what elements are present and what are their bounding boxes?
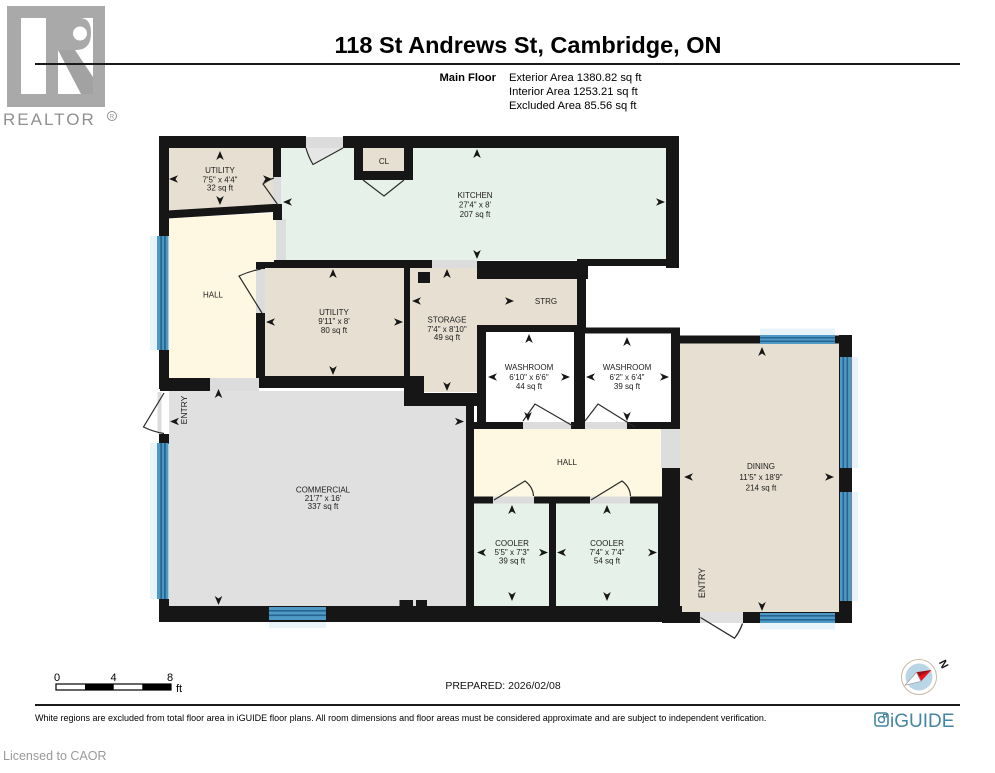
svg-text:COOLER: COOLER — [495, 539, 529, 548]
svg-text:Main Floor: Main Floor — [439, 72, 496, 84]
svg-text:80 sq ft: 80 sq ft — [321, 326, 348, 335]
svg-text:8: 8 — [167, 672, 173, 684]
svg-text:4: 4 — [110, 672, 116, 684]
svg-text:Exterior Area 1380.82 sq ft: Exterior Area 1380.82 sq ft — [509, 72, 642, 84]
svg-text:6'10" x 6'6": 6'10" x 6'6" — [509, 373, 549, 382]
svg-text:R: R — [110, 115, 115, 121]
svg-text:HALL: HALL — [203, 291, 224, 300]
svg-text:DINING: DINING — [747, 462, 775, 471]
svg-text:WASHROOM: WASHROOM — [505, 363, 554, 372]
svg-text:STORAGE: STORAGE — [428, 316, 467, 325]
svg-text:9'11" x 8': 9'11" x 8' — [318, 317, 350, 326]
svg-text:UTILITY: UTILITY — [319, 308, 349, 317]
svg-text:PREPARED: 2026/02/08: PREPARED: 2026/02/08 — [445, 680, 561, 692]
svg-text:White regions are excluded fro: White regions are excluded from total fl… — [35, 713, 766, 723]
svg-text:ENTRY: ENTRY — [697, 568, 707, 598]
svg-text:6'2" x 6'4": 6'2" x 6'4" — [610, 373, 645, 382]
svg-text:Excluded Area 85.56 sq ft: Excluded Area 85.56 sq ft — [509, 100, 637, 112]
svg-text:STRG: STRG — [535, 297, 557, 306]
svg-text:54 sq ft: 54 sq ft — [594, 557, 621, 566]
svg-text:Licensed to CAOR: Licensed to CAOR — [3, 749, 107, 763]
svg-text:214 sq ft: 214 sq ft — [746, 484, 777, 493]
svg-text:COOLER: COOLER — [590, 539, 624, 548]
svg-text:ENTRY: ENTRY — [179, 395, 189, 424]
svg-text:39 sq ft: 39 sq ft — [499, 557, 526, 566]
svg-text:ft: ft — [176, 683, 182, 695]
svg-text:207 sq ft: 207 sq ft — [460, 210, 491, 219]
svg-text:Interior Area 1253.21 sq ft: Interior Area 1253.21 sq ft — [509, 86, 639, 98]
svg-text:WASHROOM: WASHROOM — [603, 363, 652, 372]
svg-text:UTILITY: UTILITY — [205, 166, 235, 175]
svg-text:iGUIDE: iGUIDE — [890, 711, 954, 732]
svg-text:HALL: HALL — [557, 458, 578, 467]
svg-text:27'4" x 8': 27'4" x 8' — [459, 201, 492, 210]
svg-text:REALTOR: REALTOR — [3, 110, 96, 129]
svg-text:11'5" x 18'9": 11'5" x 18'9" — [739, 473, 782, 482]
svg-text:KITCHEN: KITCHEN — [457, 191, 492, 200]
svg-text:CL: CL — [379, 157, 390, 166]
svg-text:0: 0 — [54, 672, 60, 684]
svg-text:39 sq ft: 39 sq ft — [614, 382, 641, 391]
svg-text:49 sq ft: 49 sq ft — [434, 333, 461, 342]
svg-text:44 sq ft: 44 sq ft — [516, 382, 543, 391]
svg-text:337 sq ft: 337 sq ft — [308, 502, 339, 511]
svg-text:32 sq ft: 32 sq ft — [207, 184, 234, 193]
svg-text:118 St Andrews St, Cambridge,: 118 St Andrews St, Cambridge, ON — [335, 32, 722, 58]
